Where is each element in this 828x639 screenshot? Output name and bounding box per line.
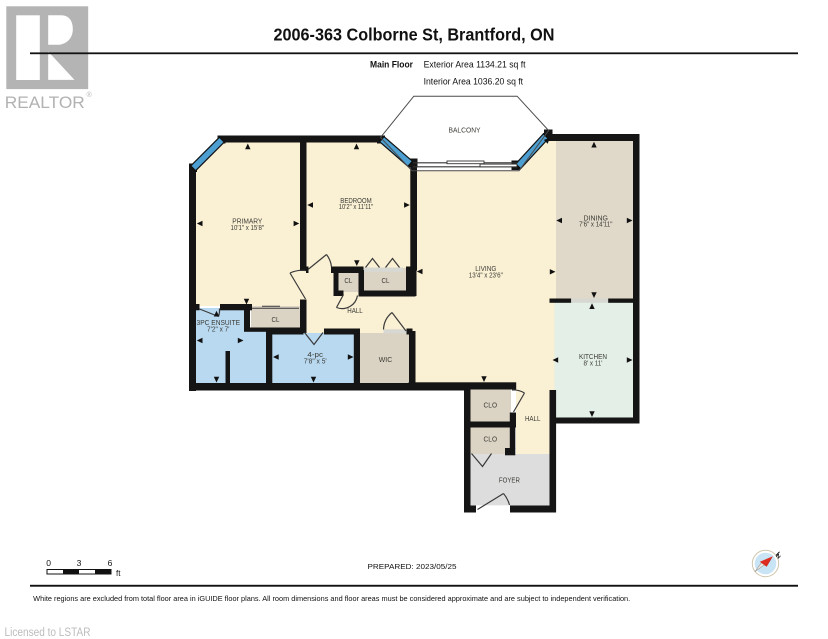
svg-text:BALCONY: BALCONY (449, 125, 481, 134)
svg-text:Interior Area 1036.20 sq ft: Interior Area 1036.20 sq ft (424, 76, 524, 87)
svg-text:PREPARED: 2023/05/25: PREPARED: 2023/05/25 (368, 562, 457, 571)
svg-text:10'1" x 15'8": 10'1" x 15'8" (231, 225, 265, 232)
svg-text:13'4" x 23'6": 13'4" x 23'6" (469, 272, 503, 279)
svg-text:7'6" x 14'11": 7'6" x 14'11" (579, 222, 613, 229)
svg-text:FOYER: FOYER (499, 476, 520, 485)
svg-text:10'2" x 11'11": 10'2" x 11'11" (339, 204, 374, 211)
svg-text:6: 6 (108, 558, 113, 568)
svg-text:White regions are excluded fro: White regions are excluded from total fl… (33, 594, 630, 603)
svg-text:7'8" x 5': 7'8" x 5' (304, 358, 327, 365)
svg-text:WIC: WIC (379, 355, 393, 364)
svg-text:HALL: HALL (347, 306, 363, 315)
svg-text:Licensed to LSTAR: Licensed to LSTAR (5, 627, 91, 639)
svg-text:CL: CL (344, 276, 352, 285)
svg-text:CL: CL (382, 276, 390, 285)
svg-text:3: 3 (77, 558, 82, 568)
svg-text:CLO: CLO (484, 435, 498, 444)
svg-text:CLO: CLO (484, 401, 498, 410)
svg-text:2006-363 Colborne St, Brantfor: 2006-363 Colborne St, Brantford, ON (274, 25, 555, 45)
svg-text:REALTOR: REALTOR (5, 94, 85, 112)
svg-text:ft: ft (116, 569, 121, 578)
svg-text:Exterior Area 1134.21 sq ft: Exterior Area 1134.21 sq ft (424, 60, 526, 71)
svg-text:CL: CL (272, 315, 280, 324)
svg-text:8' x 11': 8' x 11' (584, 361, 603, 368)
svg-text:Main Floor: Main Floor (370, 60, 413, 71)
svg-text:7'2" x 7': 7'2" x 7' (207, 327, 230, 334)
svg-text:®: ® (87, 91, 93, 99)
svg-text:0: 0 (46, 558, 51, 568)
svg-text:HALL: HALL (525, 414, 541, 423)
